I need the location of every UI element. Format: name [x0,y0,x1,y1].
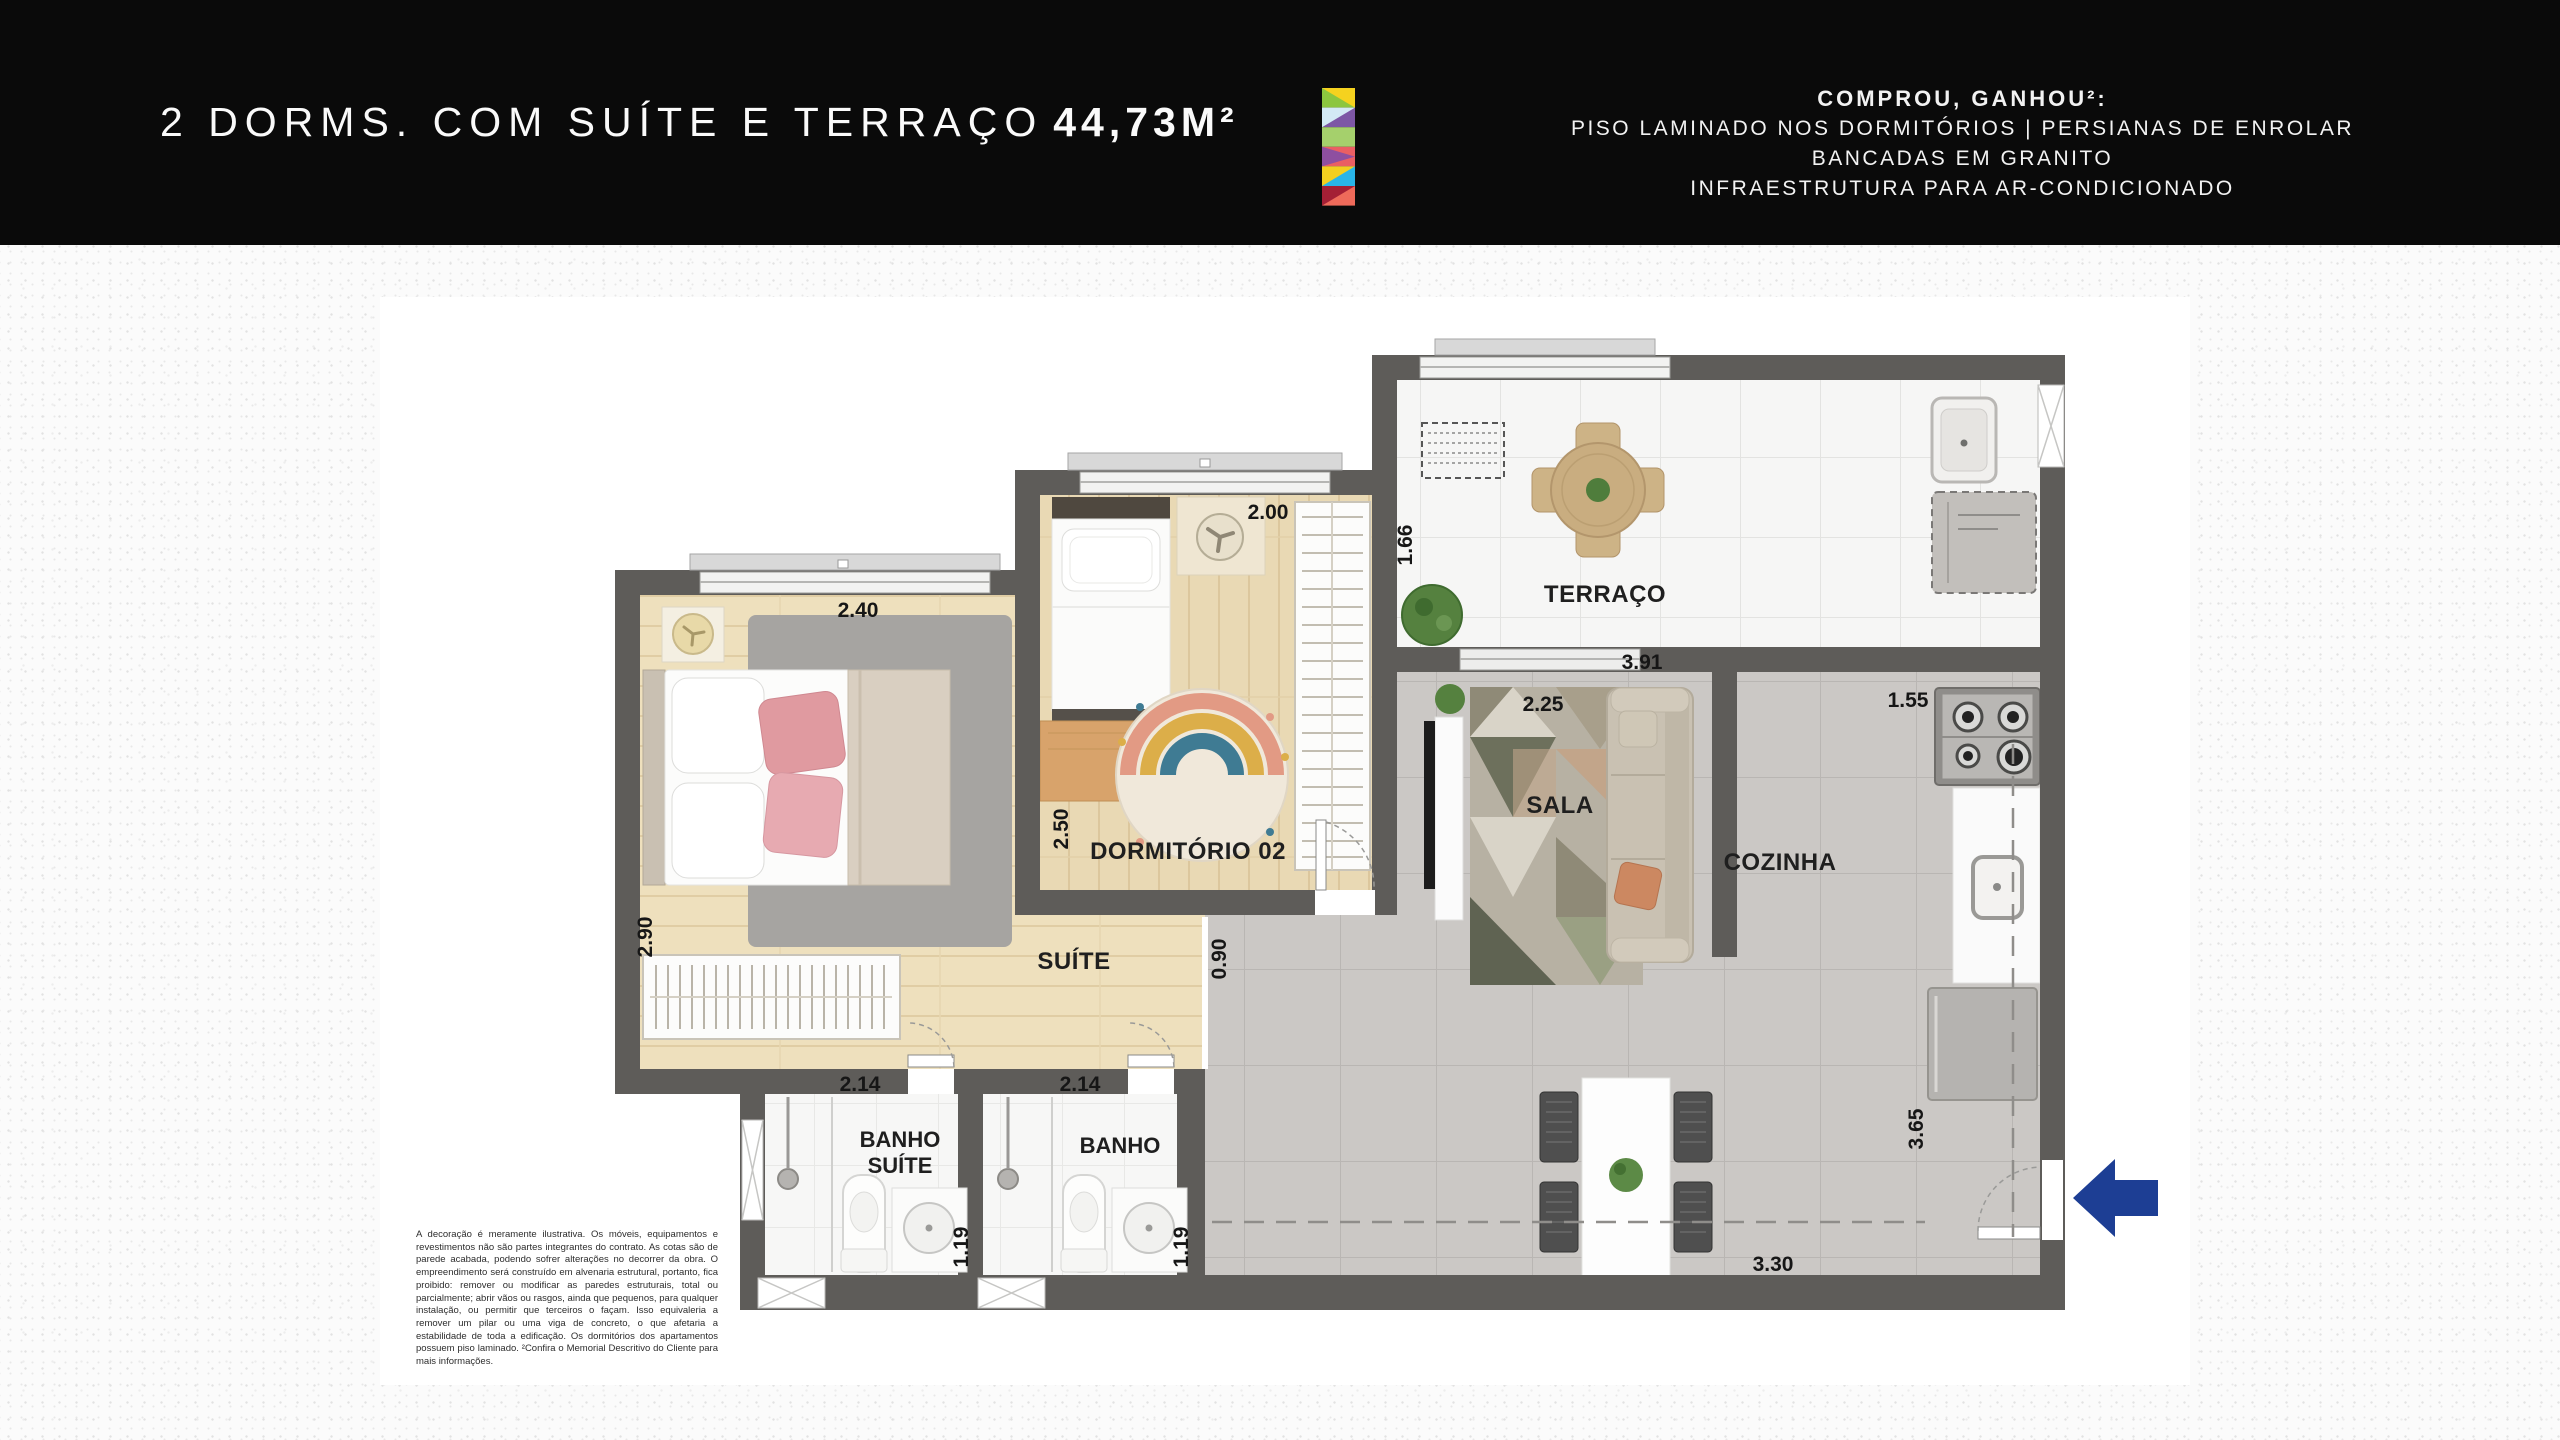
nightstand-lamp [662,607,724,662]
sofa-pillow-beige [1619,711,1657,747]
banho-bottom-window [978,1278,1045,1308]
dim-dorm2-width: 2.00 [1248,501,1289,524]
washing-machine [1932,492,2036,593]
entry-door-leaf [1978,1227,2040,1239]
logo-square-2 [1322,108,1355,128]
banho-suite-door-opening [908,1069,954,1094]
dim-banho-width: 2.14 [1060,1073,1101,1096]
promo-heading: COMPROU, GANHOU²: [1430,84,2495,114]
kitchen-counter-sink [1953,788,2040,983]
dim-banho-suite-width: 2.14 [840,1073,881,1096]
logo-square-4 [1322,147,1355,167]
dim-cozinha-width: 1.55 [1888,689,1929,712]
rainbow-rug [1116,689,1289,861]
dim-entry-depth: 3.65 [1905,1108,1928,1149]
label-suite: SUÍTE [1037,947,1110,975]
shower-head-icon [998,1169,1018,1189]
toilet-icon [841,1175,887,1272]
tv-sala-icon [1424,721,1435,889]
dim-dorm2-depth: 2.50 [1050,809,1073,850]
pillow-pink-1 [757,690,847,776]
dorm2-door-leaf [1316,820,1326,890]
label-sala: SALA [1526,792,1593,819]
dim-banho-depth: 1.19 [1170,1227,1193,1268]
dim-living-width: 3.30 [1753,1253,1794,1276]
table-plant-icon [1586,478,1610,502]
pillow-white-1 [672,678,764,773]
label-dormitorio2: DORMITÓRIO 02 [1090,837,1286,865]
dorm2-door-opening [1315,890,1375,915]
logo-square-6 [1322,186,1355,206]
pillow-white-2 [672,783,764,878]
stove-cooktop [1935,688,2040,785]
dim-terraco-width: 3.91 [1622,651,1663,674]
dining-plant-icon [1609,1158,1643,1192]
dim-banho-suite-depth: 1.19 [950,1227,973,1268]
fridge [1928,988,2037,1100]
tv-rack [1435,717,1463,920]
single-bed [1052,497,1170,711]
terraco-window-rail [1435,339,1655,355]
dim-sala-width: 2.25 [1523,693,1564,716]
logo-square-5 [1322,166,1355,186]
wardrobe-dorm2 [1295,502,1370,870]
toilet-icon [1061,1175,1107,1272]
wardrobe-suite [643,955,900,1039]
dim-suite-width: 2.40 [838,599,879,622]
promo-block: COMPROU, GANHOU²: PISO LAMINADO NOS DORM… [1430,84,2495,204]
promo-line-1: PISO LAMINADO NOS DORMITÓRIOS | PERSIANA… [1430,114,2495,144]
logo-square-3 [1322,127,1355,147]
banho-door-opening [1128,1069,1174,1094]
double-bed [643,670,950,885]
entry-arrow-icon [2073,1159,2158,1237]
floor-plan: 2.40 2.90 2.00 2.50 1.66 3.91 2.25 1.55 … [380,297,2190,1385]
floor-hall [1040,915,1205,1069]
plant-icon [1402,585,1462,645]
brand-logo-icon [1322,88,1356,211]
floorplan-card: 2.40 2.90 2.00 2.50 1.66 3.91 2.25 1.55 … [380,297,2190,1385]
label-terraco: TERRAÇO [1544,581,1666,608]
label-cozinha: COZINHA [1724,849,1837,876]
pillow-pink-2 [762,771,844,858]
dim-suite-depth: 2.90 [634,917,657,958]
banho-door-leaf [1128,1055,1174,1067]
entry-door-opening [2042,1160,2063,1240]
terraco-right-window [2038,385,2064,467]
label-banho: BANHO [1080,1133,1161,1158]
shower-head-icon [778,1169,798,1189]
header-bar: 2 DORMS. COM SUÍTE E TERRAÇO44,73M² [0,0,2560,245]
plan-area-text: 44,73M² [1053,99,1238,145]
promo-line-3: INFRAESTRUTURA PARA AR-CONDICIONADO [1430,174,2495,204]
laundry-sink [1932,398,1996,482]
dim-hall-width: 0.90 [1208,939,1231,980]
sala-plant-icon [1435,684,1465,714]
banho-suite-bottom-window [758,1278,825,1308]
plan-title-text: 2 DORMS. COM SUÍTE E TERRAÇO [160,99,1043,145]
banho-suite-door-leaf [908,1055,954,1067]
legal-disclaimer: A decoração é meramente ilustrativa. Os … [416,1229,718,1369]
banho-suite-side-window [742,1120,763,1220]
logo-square-1 [1322,88,1355,108]
sofa [1607,688,1693,962]
dim-terraco-depth: 1.66 [1394,525,1417,566]
label-banho-suite-1: BANHO [860,1127,941,1152]
label-banho-suite-2: SUÍTE [868,1153,933,1178]
sofa-pillow-orange [1613,861,1663,911]
promo-line-2: BANCADAS EM GRANITO [1430,144,2495,174]
page-title: 2 DORMS. COM SUÍTE E TERRAÇO44,73M² [160,0,1239,245]
